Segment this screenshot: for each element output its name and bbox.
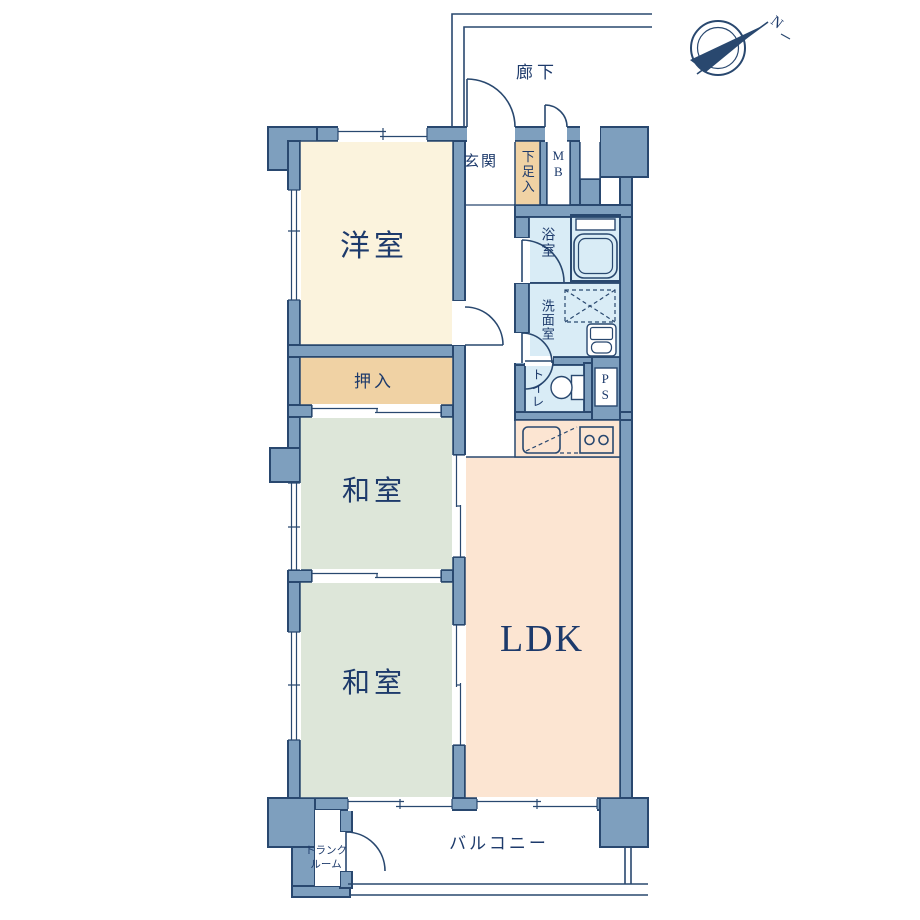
pipe-space-label: PS [597, 371, 613, 403]
washroom-label: 洗面室 [539, 299, 555, 341]
vanity-sink [587, 324, 616, 356]
bathroom-label: 浴室 [538, 227, 555, 259]
corridor-label: 廊下 [516, 63, 558, 83]
balcony-label: バルコニー [449, 834, 549, 854]
tatami-room-2-label: 和室 [342, 667, 406, 701]
western-room-label: 洋室 [340, 229, 408, 265]
meter-box-label: MB [550, 148, 566, 180]
toilet-label: トイレ [529, 368, 544, 409]
ldk-label: LDK [500, 617, 584, 663]
closet-label: 押入 [354, 372, 394, 392]
tatami-room-1-label: 和室 [342, 475, 406, 509]
floor-plan: N 廊下 玄関 下足入 MB 浴室 洗面室 トイレ PS 洋室 押入 和室 和室… [0, 0, 920, 920]
utility-bay [580, 141, 600, 179]
trunk-room-label-line1: トランク [305, 846, 347, 859]
trunk-room-label-line2: ルーム [310, 860, 341, 873]
kitchen-counter [515, 420, 620, 457]
shoe-box-label: 下足入 [519, 150, 535, 195]
entrance-label: 玄関 [464, 153, 498, 171]
floor-plan-drawing: N [0, 0, 920, 920]
toilet-fixture [551, 376, 584, 400]
